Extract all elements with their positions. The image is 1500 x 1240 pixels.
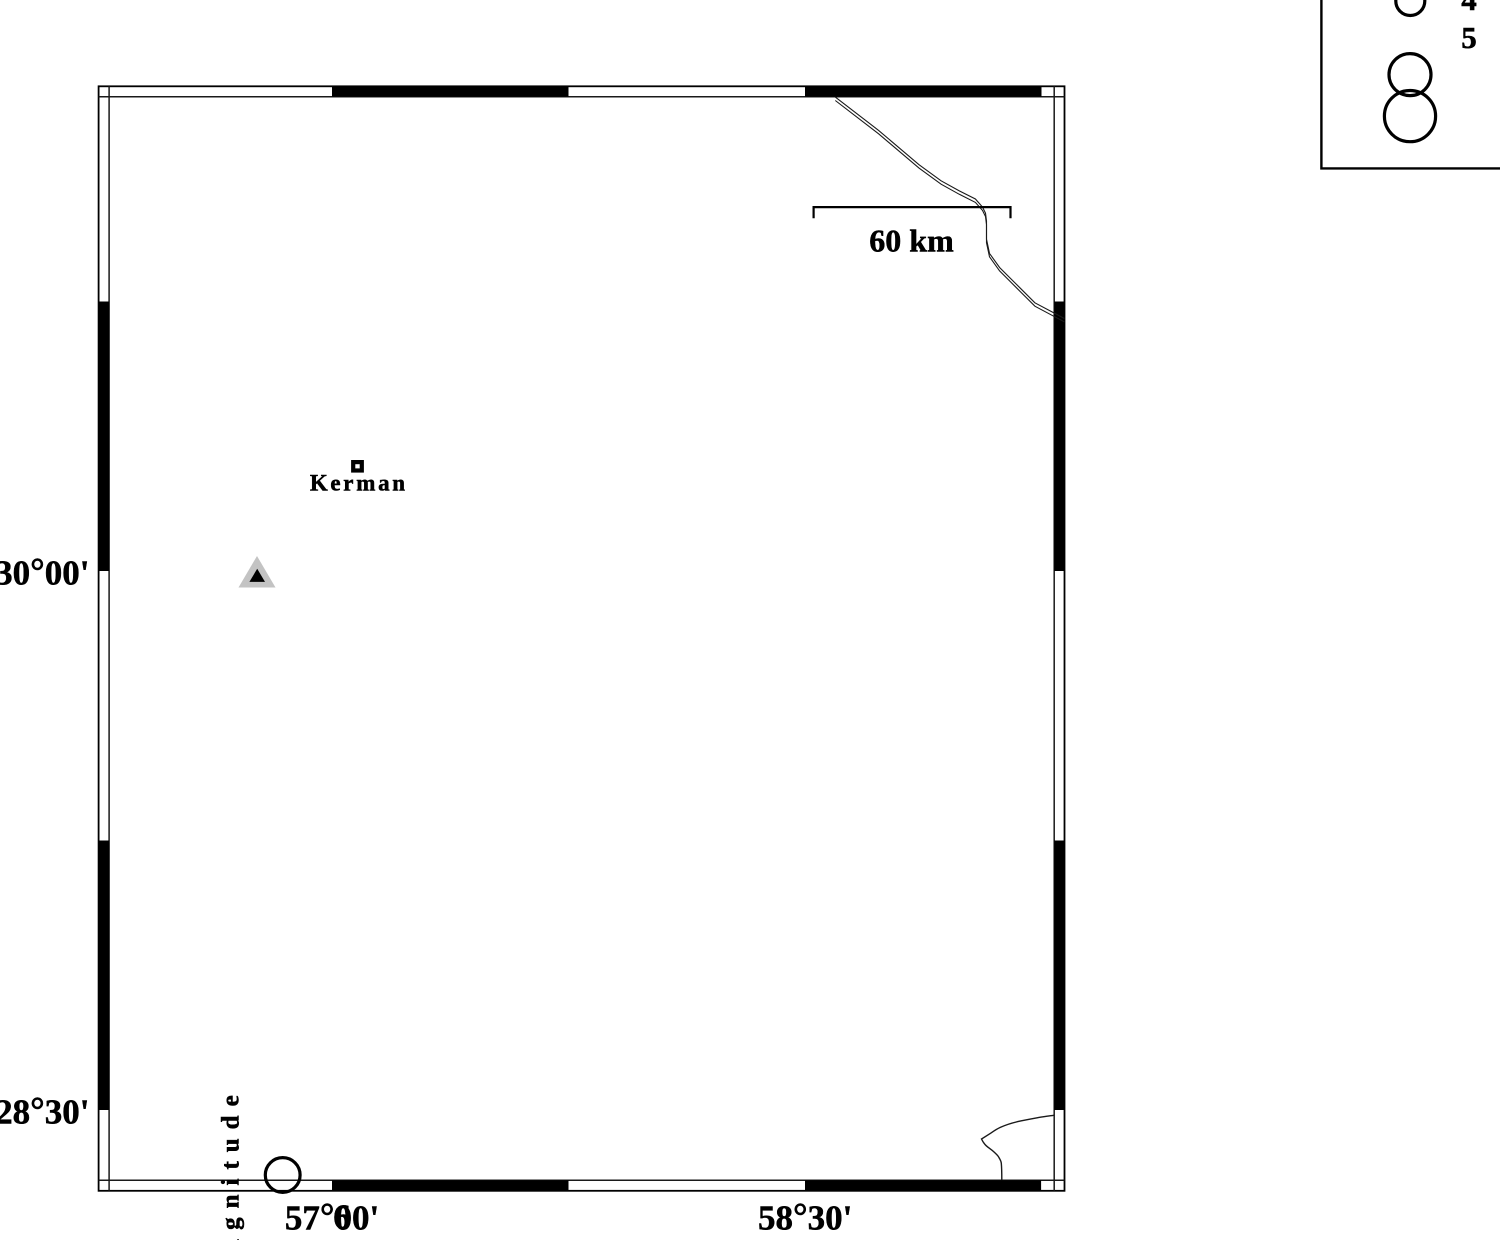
svg-text:Magnitude: Magnitude <box>218 1086 245 1240</box>
svg-text:57°00': 57°00' <box>285 1195 379 1237</box>
svg-text:58°30': 58°30' <box>758 1195 852 1237</box>
svg-text:4: 4 <box>1461 0 1477 17</box>
svg-text:28°30': 28°30' <box>0 1089 90 1131</box>
svg-text:6: 6 <box>333 1198 351 1237</box>
svg-text:30°00': 30°00' <box>0 550 90 592</box>
svg-text:Kerman: Kerman <box>310 470 408 495</box>
svg-text:60 km: 60 km <box>869 222 954 258</box>
svg-text:5: 5 <box>1461 20 1477 55</box>
